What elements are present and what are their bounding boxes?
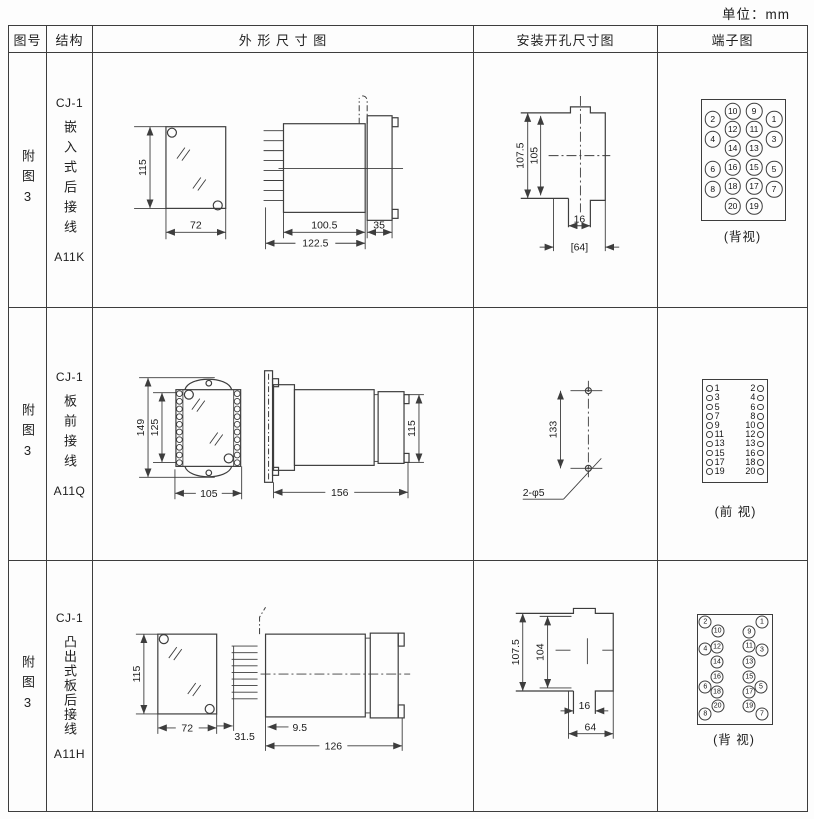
outline-svg-row1: 115 72 100.5 — [93, 53, 473, 307]
terminal-circle-17: 17 — [746, 178, 763, 195]
terminal-circle — [757, 413, 764, 420]
model-code-label: A11H — [54, 747, 85, 761]
spec-table: 图号 结构 外 形 尺 寸 图 安装开孔尺寸图 端子图 附图3 CJ-1 嵌入式… — [8, 25, 808, 812]
header-structure: 结构 — [47, 26, 93, 53]
fig-no-row1: 附图3 — [9, 53, 47, 308]
terminal-circle-20: 20 — [711, 700, 724, 713]
terminal-circle-7: 7 — [756, 708, 769, 721]
side-view: 100.5 35 122.5 — [264, 96, 403, 250]
terminal-circle-11: 11 — [743, 640, 756, 653]
dim-height: 149 — [136, 419, 147, 437]
mounting-svg-row2: 133 2-φ5 — [474, 308, 657, 560]
terminal-circle — [706, 450, 713, 457]
terminal-circle — [757, 450, 764, 457]
view-label: (背视) — [701, 226, 784, 245]
seal-handle — [260, 607, 266, 634]
header-fig-no: 图号 — [9, 26, 47, 53]
outline-svg-row3: 115 72 31.5 — [93, 561, 473, 811]
terminal-row: 1920 — [706, 467, 764, 476]
hatch-mark — [210, 433, 223, 446]
dim-hole-spacing: 133 — [549, 421, 560, 439]
terminal-circle — [757, 459, 764, 466]
structure-row3: CJ-1 凸出式板后接线 A11H — [47, 561, 93, 811]
terminal-circle — [706, 422, 713, 429]
terminal-number: 13 — [715, 439, 725, 448]
dim-height-inner: 104 — [536, 643, 547, 661]
unit-label: 单位：mm — [722, 3, 790, 23]
terminal-circle-12: 12 — [724, 121, 741, 138]
terminal-circle-14: 14 — [711, 656, 724, 669]
terminal-circle-8: 8 — [704, 181, 721, 198]
dim-total-length: 126 — [325, 741, 343, 752]
dim-cutout-width: [64] — [571, 243, 589, 254]
mounting-screw — [159, 635, 168, 644]
mounting-svg-row3: 107.5 104 16 64 — [474, 561, 657, 811]
terminal-circle — [706, 413, 713, 420]
terminal-circle-1: 1 — [756, 616, 769, 629]
fig-no-text: 附图3 — [18, 655, 37, 717]
terminal-circle — [757, 431, 764, 438]
terminal-circle — [757, 441, 764, 448]
terminal-circle-9: 9 — [743, 626, 756, 639]
header-mounting: 安装开孔尺寸图 — [474, 26, 658, 53]
terminal-number: 13 — [745, 439, 755, 448]
dim-slot-width: 16 — [574, 214, 586, 225]
hatch-mark — [192, 399, 205, 412]
model-code-label: A11K — [54, 250, 84, 264]
terminal-circle — [757, 468, 764, 475]
mounting-drawing-a11k: 107.5 105 16 [64] — [474, 53, 658, 308]
cutout-profile — [521, 107, 606, 227]
terminal-diagram-a11h: (背 视) 2110912114314131615651817201987 — [658, 561, 807, 811]
terminal-circle — [706, 431, 713, 438]
flange-arcs — [185, 379, 232, 477]
terminal-circle-9: 9 — [746, 103, 763, 120]
terminal-circle-3: 3 — [756, 644, 769, 657]
terminal-circle-18: 18 — [724, 178, 741, 195]
terminal-circle-8: 8 — [699, 708, 712, 721]
outline-drawing-a11k: 115 72 100.5 — [93, 53, 474, 308]
dim-total-length: 122.5 — [302, 239, 328, 250]
terminal-number: 19 — [715, 467, 725, 476]
dim-slot-width: 16 — [579, 701, 591, 712]
fig-no-row2: 附图3 — [9, 308, 47, 561]
terminal-circle — [757, 385, 764, 392]
terminal-circle — [757, 404, 764, 411]
mount-type-label: 嵌入式后接线 — [60, 120, 79, 240]
terminal-circle-7: 7 — [766, 181, 783, 198]
terminal-circle — [706, 468, 713, 475]
mount-type-label: 凸出式板后接线 — [60, 635, 79, 737]
seal-handle — [359, 96, 367, 124]
terminal-circle-2: 2 — [699, 616, 712, 629]
terminal-circle-6: 6 — [704, 161, 721, 178]
terminal-circle-13: 13 — [743, 656, 756, 669]
side-view: 115 156 — [265, 371, 424, 499]
front-view: 115 72 — [134, 127, 226, 240]
terminal-circle-12: 12 — [711, 641, 724, 654]
mounting-svg-row1: 107.5 105 16 [64] — [474, 53, 657, 307]
view-label: (前 视) — [694, 501, 777, 520]
dim-total-length: 156 — [331, 488, 349, 499]
terminal-box: 1234567891011121313151617181920 — [702, 379, 768, 483]
terminal-circle-18: 18 — [711, 686, 724, 699]
terminal-number: 4 — [750, 393, 755, 402]
terminal-circle-5: 5 — [766, 161, 783, 178]
terminal-circle-1: 1 — [766, 111, 783, 128]
terminal-diagram-a11k: (背视) 1092112114314131615651817872019 — [658, 53, 807, 308]
terminal-circle — [757, 422, 764, 429]
terminal-circle-15: 15 — [746, 159, 763, 176]
hatch-mark — [188, 683, 201, 696]
mount-type-label: 板前接线 — [60, 394, 79, 474]
front-view: 149 125 105 — [136, 378, 242, 500]
model-label: CJ-1 — [56, 96, 83, 110]
model-label: CJ-1 — [56, 611, 83, 625]
model-code-label: A11Q — [54, 484, 86, 498]
dim-height-outer: 107.5 — [516, 142, 527, 168]
hatch-mark — [169, 647, 182, 660]
structure-row1: CJ-1 嵌入式后接线 A11K — [47, 53, 93, 308]
side-view: 31.5 9.5 126 — [217, 607, 410, 752]
terminal-pins — [232, 646, 258, 699]
terminal-circle-4: 4 — [699, 643, 712, 656]
cutout-profile — [516, 608, 613, 713]
hole-size-label: 2-φ5 — [523, 488, 545, 499]
dim-body-length: 100.5 — [311, 220, 337, 231]
terminal-diagram-a11q: 1234567891011121313151617181920 (前 视) — [658, 308, 807, 561]
structure-row2: CJ-1 板前接线 A11Q — [47, 308, 93, 561]
terminal-circle — [706, 385, 713, 392]
leader-line — [564, 458, 602, 499]
terminal-circle-13: 13 — [746, 140, 763, 157]
dim-rear-height: 115 — [407, 420, 418, 437]
terminal-circle-4: 4 — [704, 131, 721, 148]
terminal-circle-3: 3 — [766, 131, 783, 148]
dim-inner-height: 125 — [150, 419, 161, 437]
terminal-circle-5: 5 — [755, 681, 768, 694]
hatch-mark — [193, 178, 206, 191]
terminal-circle — [706, 395, 713, 402]
fig-no-row3: 附图3 — [9, 561, 47, 811]
dim-width: 72 — [190, 220, 202, 231]
dim-width: 72 — [181, 723, 193, 734]
dim-height: 115 — [138, 159, 149, 176]
view-label: (背 视) — [697, 729, 771, 748]
front-view: 115 72 — [132, 634, 217, 734]
model-label: CJ-1 — [56, 370, 83, 384]
terminal-circle-14: 14 — [724, 140, 741, 157]
fig-no-text: 附图3 — [18, 403, 37, 465]
flange-hole — [206, 380, 212, 386]
dim-offset: 9.5 — [292, 723, 307, 734]
header-terminal: 端子图 — [658, 26, 807, 53]
terminal-pins — [264, 131, 284, 201]
terminal-circle-11: 11 — [746, 121, 763, 138]
terminal-circle-10: 10 — [711, 625, 724, 638]
terminal-circle-16: 16 — [711, 671, 724, 684]
outline-drawing-a11h: 115 72 31.5 — [93, 561, 474, 811]
hatch-mark — [177, 148, 190, 161]
dim-height: 115 — [132, 666, 143, 683]
mounting-screw — [167, 128, 176, 137]
dim-height-outer: 107.5 — [511, 639, 522, 665]
terminal-number: 3 — [715, 393, 720, 402]
terminal-circle-19: 19 — [746, 198, 763, 215]
mounting-screw — [224, 454, 233, 463]
terminal-circle — [757, 395, 764, 402]
outline-svg-row2: 149 125 105 — [93, 308, 473, 560]
mounting-screw — [205, 704, 214, 713]
terminal-circle — [706, 459, 713, 466]
terminal-circle-10: 10 — [724, 103, 741, 120]
dim-pin-length: 31.5 — [234, 732, 255, 743]
mounting-drawing-a11q: 133 2-φ5 — [474, 308, 658, 561]
terminal-circle-16: 16 — [724, 159, 741, 176]
dim-cutout-width: 64 — [585, 722, 597, 733]
terminal-circle — [706, 404, 713, 411]
header-outline: 外 形 尺 寸 图 — [93, 26, 474, 53]
mounting-screw — [184, 390, 193, 399]
fig-no-text: 附图3 — [18, 149, 37, 211]
terminal-circle-17: 17 — [743, 686, 756, 699]
terminal-circle — [706, 441, 713, 448]
terminal-circle-19: 19 — [743, 700, 756, 713]
terminal-number: 20 — [745, 467, 755, 476]
dim-height-inner: 105 — [530, 147, 541, 165]
dim-width: 105 — [200, 489, 218, 500]
dim-flange-width: 35 — [373, 220, 385, 231]
flange-hole — [206, 470, 212, 476]
terminal-circle-2: 2 — [704, 111, 721, 128]
outline-drawing-a11q: 149 125 105 — [93, 308, 474, 561]
terminal-circle-15: 15 — [743, 671, 756, 684]
terminal-circle-20: 20 — [724, 198, 741, 215]
mounting-drawing-a11h: 107.5 104 16 64 — [474, 561, 658, 811]
